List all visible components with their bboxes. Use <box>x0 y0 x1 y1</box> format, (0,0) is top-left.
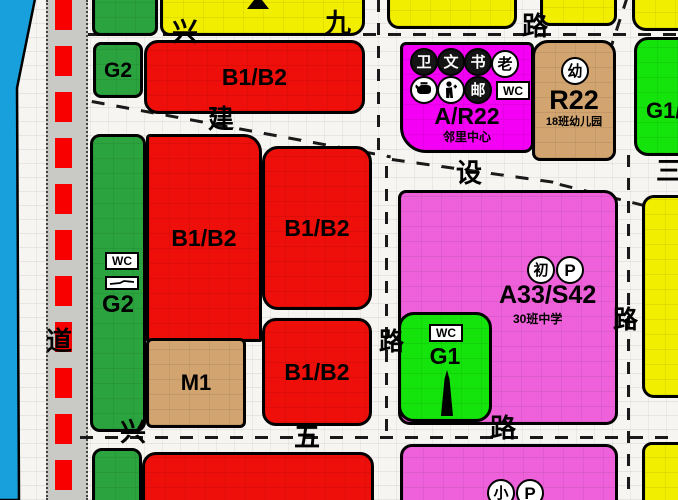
parking-icon: P <box>556 256 584 284</box>
road-label-lu-mid: 路 <box>379 330 404 355</box>
parcel-b1b2-west: B1/B2 <box>146 134 262 342</box>
teahouse-icon <box>410 76 438 104</box>
parcel-g1-park: WC G1 <box>398 312 492 422</box>
parcel-code: B1/B2 <box>222 66 287 89</box>
wc-icon: WC <box>105 252 139 270</box>
parcel-b1b2-south: B1/B2 <box>262 318 372 426</box>
parcel-name: 邻里中心 <box>403 131 531 143</box>
road-label-xing-top: 兴 <box>172 19 198 45</box>
parcel-m1: M1 <box>146 338 246 428</box>
water-channel-icon <box>0 0 52 500</box>
parcel-name: 18班幼儿园 <box>535 117 613 128</box>
tower-icon <box>438 370 456 416</box>
parking-icon: P <box>516 479 544 500</box>
library-icon: 书 <box>464 48 492 76</box>
parcel-green-south <box>92 448 142 500</box>
wc-icon: WC <box>496 81 530 100</box>
parcel-red-south <box>142 452 374 500</box>
parcel-code: G2 <box>104 60 132 81</box>
road-label-xing-bottom: 兴 <box>120 419 146 445</box>
centerline-bottom-road <box>80 436 678 439</box>
wc-icon: WC <box>429 324 463 342</box>
road-label-lu-bottom: 路 <box>490 415 516 441</box>
kindergarten-icon: 幼 <box>561 57 589 85</box>
utility-symbol-icon <box>105 276 139 290</box>
parcel-yellow-east <box>642 195 678 398</box>
parcel-yellow-southeast <box>642 442 678 500</box>
road-label-she: 设 <box>456 160 482 186</box>
parcel-green-northwest <box>92 0 158 36</box>
parcel-code: B1/B2 <box>284 361 349 384</box>
parcel-g2-north: G2 <box>93 42 143 98</box>
red-boundary-line <box>55 0 72 500</box>
parcel-g1-northeast: G1/ <box>634 37 678 156</box>
parcel-yellow-northeast <box>632 0 678 31</box>
parcel-b1b2-mid: B1/B2 <box>262 146 372 310</box>
parcel-g2-west: WC G2 <box>90 134 146 432</box>
parcel-kindergarten: 幼 R22 18班幼儿园 <box>532 40 616 161</box>
triangle-symbol-icon <box>247 0 269 9</box>
primary-school-icon: 小 <box>487 479 515 500</box>
road-label-wu: 五 <box>294 424 320 450</box>
planning-map: G2 B1/B2 卫 文 书 老 邮 WC A/R22 邻里中心 幼 R22 1… <box>0 0 678 500</box>
service-person-icon <box>437 76 465 104</box>
parcel-code: G2 <box>93 293 143 317</box>
road-label-lu-right: 路 <box>613 308 638 333</box>
elderly-icon: 老 <box>491 50 519 78</box>
parcel-neighborhood-center: 卫 文 书 老 邮 WC A/R22 邻里中心 <box>400 42 534 153</box>
parcel-code: B1/B2 <box>284 217 349 240</box>
road-label-lu-top: 路 <box>522 13 548 39</box>
parcel-code: B1/B2 <box>171 227 236 250</box>
parcel-code: M1 <box>181 372 212 394</box>
junior-school-icon: 初 <box>527 256 555 284</box>
parcel-code: G1 <box>401 345 489 368</box>
centerline-vertical-2 <box>385 166 388 432</box>
road-label-jiu: 九 <box>325 10 351 36</box>
road-label-jian: 建 <box>208 106 234 132</box>
parcel-code: G1/ <box>646 100 678 122</box>
parcel-yellow-north-3 <box>540 0 617 26</box>
road-label-dao: 道 <box>46 328 72 354</box>
health-icon: 卫 <box>410 48 438 76</box>
parcel-yellow-north-2 <box>387 0 517 29</box>
parcel-name: 30班中学 <box>513 313 562 325</box>
culture-icon: 文 <box>437 48 465 76</box>
post-icon: 邮 <box>464 76 492 104</box>
centerline-vertical-1 <box>377 0 380 152</box>
parcel-pink-south: 小 P <box>400 444 618 500</box>
road-label-san-partial: 三 <box>656 158 678 184</box>
parcel-code: R22 <box>535 87 613 114</box>
parcel-code: A/R22 <box>403 105 531 128</box>
parcel-code: A33/S42 <box>499 283 596 308</box>
parcel-b1b2-north: B1/B2 <box>144 40 365 114</box>
